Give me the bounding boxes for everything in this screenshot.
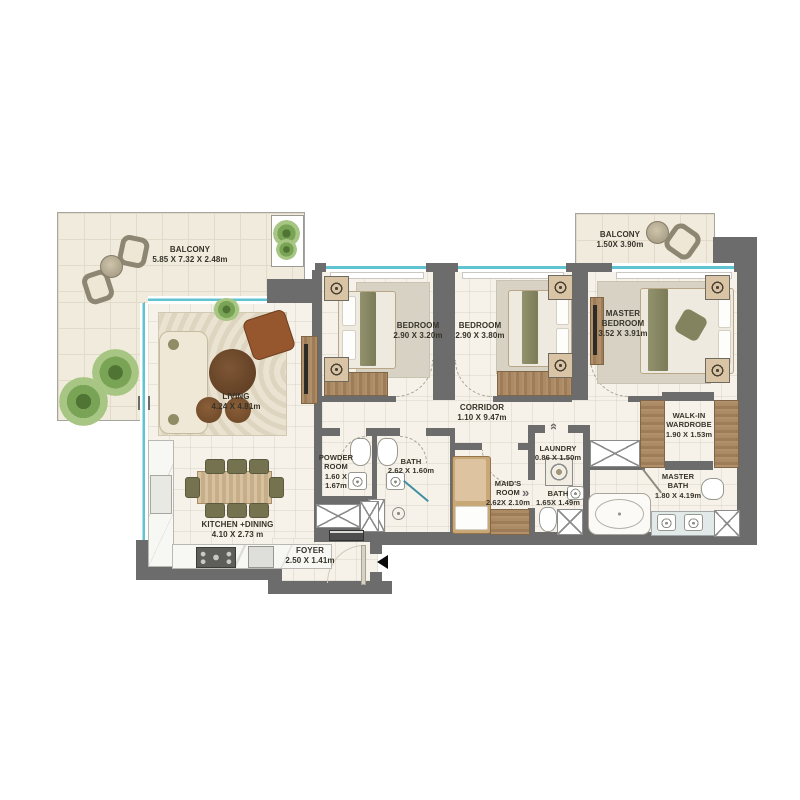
master-nightstand (705, 358, 730, 383)
room-name: FOYER (278, 546, 342, 556)
room-label-powder: POWDER ROOM1.60 X 1.67m (313, 453, 359, 491)
wall-living-corner (267, 279, 317, 303)
room-label-master-bath: MASTER BATH1.80 X 4.19m (651, 472, 705, 500)
bedroom1-nightstand (324, 357, 349, 382)
room-dims: 3.52 X 3.91m (591, 329, 655, 339)
dining-chair (185, 477, 200, 498)
sliding-door (329, 530, 364, 541)
dining-chair (227, 503, 247, 518)
room-label-bedroom1: BEDROOM2.90 X 3.20m (387, 321, 449, 341)
entrance-arrow-icon (377, 555, 388, 569)
sofa-cushion (168, 339, 179, 350)
kitchen-fridge (150, 475, 172, 514)
dining-chair (227, 459, 247, 474)
dining-chair (269, 477, 284, 498)
balcony-plant (276, 239, 297, 260)
room-label-laundry: LAUNDRY0.86 X 1.50m (529, 444, 587, 463)
room-dims: 4.10 X 2.73 m (190, 530, 285, 540)
wall-foyer-right-top (370, 540, 382, 554)
balcony-plant (59, 377, 108, 426)
room-name: BALCONY (130, 245, 250, 255)
room-name: BATH (384, 457, 438, 466)
room-label-maids: MAID'S ROOM2.62X 2.10m (483, 479, 533, 507)
dining-chair (249, 503, 269, 518)
room-label-balcony-master: BALCONY1.50X 3.90m (584, 230, 656, 250)
room-name: MAID'S ROOM (483, 479, 533, 498)
room-dims: 1.65X 1.49m (533, 498, 583, 507)
room-dims: 1.50X 3.90m (584, 240, 656, 250)
room-name: BEDROOM (449, 321, 511, 331)
balcony-side-table (100, 255, 123, 278)
room-name: WALK-IN WARDROBE (659, 411, 719, 430)
dining-table (197, 471, 272, 504)
maids-wardrobe (490, 509, 530, 535)
room-dims: 2.50 X 1.41m (278, 556, 342, 566)
room-dims: 2.90 X 3.20m (387, 331, 449, 341)
master-sink (684, 514, 703, 531)
bath2-toilet (539, 507, 557, 532)
wall-laundry-top-a (528, 425, 545, 433)
foyer-door-leaf (361, 545, 366, 585)
room-name: MASTER BATH (651, 472, 705, 491)
room-name: MASTER BEDROOM (591, 309, 655, 329)
room-label-balcony-main: BALCONY5.85 X 7.32 X 2.48m (130, 245, 250, 265)
room-dims: 4.24 X 4.81m (205, 402, 267, 412)
bedroom2-blanket (522, 291, 538, 364)
dining-chair (205, 459, 225, 474)
room-dims: 0.86 X 1.50m (529, 453, 587, 462)
room-name: KITCHEN +DINING (190, 520, 285, 530)
wall-masterbath-top-b (665, 461, 713, 470)
bedroom1-blanket (360, 292, 376, 366)
floor-plan: » » BALCONY5.85 X 7.32 X 2.48m BALCONY1.… (0, 0, 800, 800)
room-label-walkin: WALK-IN WARDROBE1.90 X 1.53m (659, 411, 719, 439)
hall-closet (316, 504, 360, 528)
master-shower (714, 510, 740, 537)
room-label-foyer: FOYER2.50 X 1.41m (278, 546, 342, 566)
room-label-bedroom2: BEDROOM2.90 X 3.80m (449, 321, 511, 341)
kitchen-sink (248, 546, 274, 568)
window-living-top (148, 296, 267, 304)
window-kitchen-left (140, 421, 148, 540)
room-dims: 1.60 X 1.67m (313, 472, 359, 491)
room-dims: 2.90 X 3.80m (449, 331, 511, 341)
wall-corridor-b (366, 428, 400, 436)
master-nightstand (705, 275, 730, 300)
room-name: POWDER ROOM (313, 453, 359, 472)
bedroom2-nightstand (548, 353, 573, 378)
room-label-master-bedroom: MASTER BEDROOM3.52 X 3.91m (591, 309, 655, 339)
room-dims: 5.85 X 7.32 X 2.48m (130, 255, 250, 265)
master-hall-closet (590, 440, 640, 467)
room-name: BALCONY (584, 230, 656, 240)
window-bedroom2 (458, 263, 566, 272)
laundry-door-icon: » (546, 423, 559, 430)
wall-right-outer (737, 248, 757, 543)
bath1-shower-head (392, 507, 405, 520)
window-bedroom1 (326, 263, 426, 272)
room-name: LAUNDRY (529, 444, 587, 453)
room-dims: 2.62X 2.10m (483, 498, 533, 507)
room-name: LIVING (205, 392, 267, 402)
room-label-living: LIVING4.24 X 4.81m (205, 392, 267, 412)
living-plant (213, 298, 240, 321)
master-sink (657, 514, 676, 531)
bedroom1-nightstand (324, 276, 349, 301)
room-label-bath2: BATH1.65X 1.49m (533, 489, 583, 508)
room-dims: 2.62 X 1.60m (384, 466, 438, 475)
hall-closet (360, 501, 379, 532)
wall-corridor-a (322, 428, 340, 436)
room-name: BEDROOM (387, 321, 449, 331)
room-label-kitchen: KITCHEN +DINING4.10 X 2.73 m (190, 520, 285, 540)
room-dims: 1.80 X 4.19m (651, 491, 705, 500)
bedroom1-pillow (342, 330, 356, 360)
wall-foyer-right-bottom (370, 572, 382, 583)
wall-under-bedroom2 (493, 396, 572, 402)
bedroom2-nightstand (548, 275, 573, 300)
maids-pillow (455, 506, 488, 530)
room-dims: 1.10 X 9.47m (449, 413, 515, 423)
living-coffee-table (209, 349, 256, 396)
living-tv (304, 344, 308, 394)
room-name: CORRIDOR (449, 403, 515, 413)
sofa-cushion (168, 414, 179, 425)
master-bathtub-basin (595, 499, 644, 529)
room-dims: 1.90 X 1.53m (659, 430, 719, 439)
bath2-shower (557, 509, 583, 535)
dining-chair (205, 503, 225, 518)
room-name: BATH (533, 489, 583, 498)
window-master (612, 263, 734, 272)
wall-kitchen-left-corner (136, 540, 148, 580)
maids-blanket (455, 459, 486, 501)
room-label-bath1: BATH2.62 X 1.60m (384, 457, 438, 476)
wall-walkin-top (662, 392, 714, 401)
wall-under-bedroom1 (322, 396, 396, 402)
kitchen-stove (196, 547, 236, 568)
wall-maids-top-a (455, 443, 482, 450)
room-label-corridor: CORRIDOR1.10 X 9.47m (449, 403, 515, 423)
dining-chair (249, 459, 269, 474)
window-living-left (140, 303, 148, 421)
wall-bedroom2-master (572, 270, 588, 400)
